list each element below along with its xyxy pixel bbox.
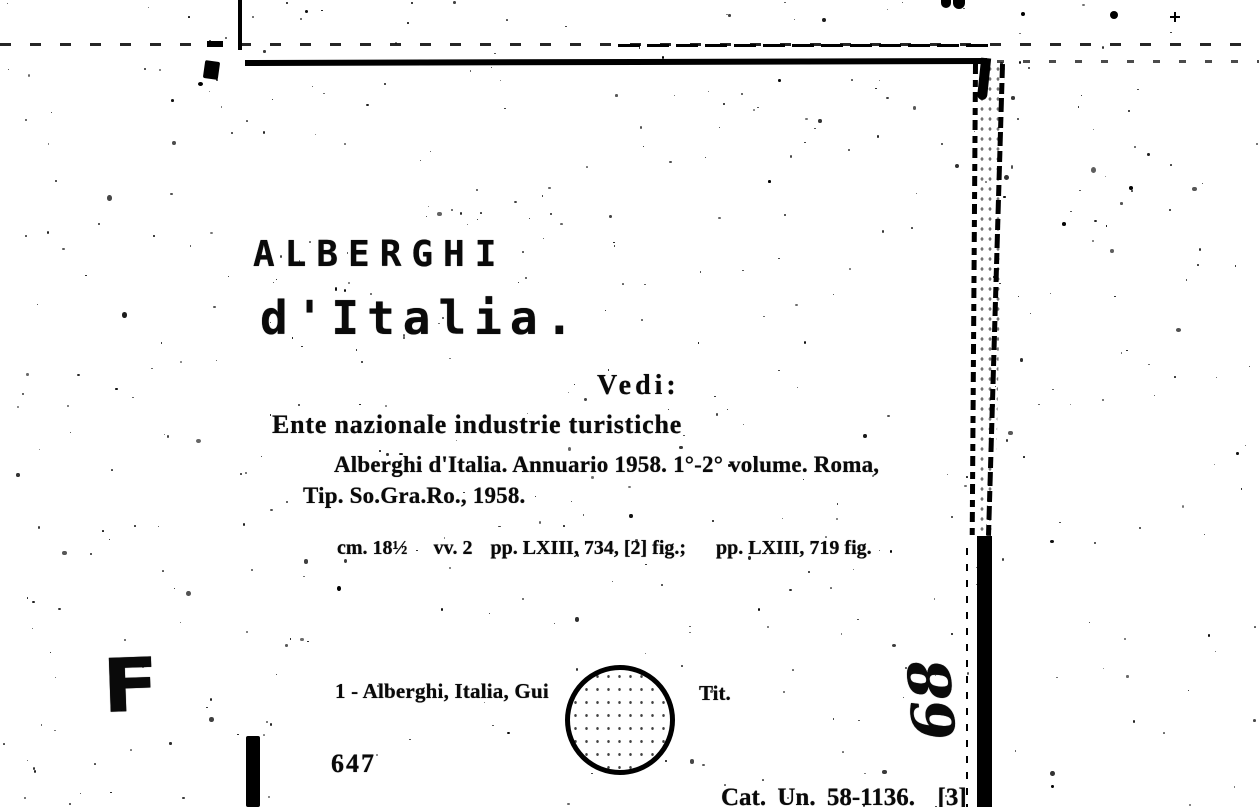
- noise-speck: [144, 68, 147, 71]
- noise-speck: [1214, 464, 1215, 465]
- noise-speck: [1050, 771, 1055, 776]
- noise-speck: [864, 773, 866, 775]
- noise-speck: [169, 742, 171, 745]
- noise-speck: [270, 509, 272, 511]
- noise-speck: [376, 754, 378, 756]
- noise-speck: [32, 628, 33, 629]
- noise-speck: [312, 86, 313, 87]
- noise-speck: [300, 18, 302, 20]
- scan-artifact-ink-dot: [1110, 11, 1118, 19]
- noise-speck: [1256, 143, 1258, 145]
- noise-speck: [963, 8, 965, 9]
- noise-speck: [303, 576, 304, 577]
- noise-speck: [543, 238, 544, 239]
- noise-speck: [514, 201, 517, 203]
- noise-speck: [728, 14, 730, 16]
- noise-speck: [80, 793, 81, 794]
- noise-speck: [848, 149, 850, 151]
- noise-speck: [741, 93, 743, 95]
- noise-speck: [384, 83, 386, 85]
- noise-speck: [767, 626, 770, 629]
- noise-speck: [1008, 431, 1012, 435]
- noise-speck: [613, 242, 615, 244]
- noise-speck: [669, 161, 672, 164]
- noise-speck: [941, 143, 943, 145]
- noise-speck: [1094, 542, 1095, 543]
- noise-speck: [758, 608, 760, 611]
- noise-speck: [719, 127, 720, 128]
- noise-speck: [1241, 488, 1242, 489]
- noise-speck: [1059, 522, 1061, 523]
- noise-speck: [1092, 240, 1094, 242]
- noise-speck: [1204, 534, 1205, 535]
- noise-speck: [851, 79, 853, 81]
- noise-speck: [276, 279, 278, 280]
- noise-speck: [252, 16, 254, 18]
- noise-speck: [270, 723, 273, 725]
- noise-speck: [1236, 452, 1239, 455]
- noise-speck: [261, 456, 263, 457]
- noise-speck: [27, 597, 28, 598]
- scan-artifact-dashed-rule-dense: [618, 44, 988, 47]
- noise-speck: [1170, 164, 1171, 166]
- noise-speck: [718, 217, 721, 219]
- noise-speck: [753, 109, 755, 111]
- noise-speck: [1192, 187, 1197, 192]
- noise-speck: [24, 797, 26, 800]
- noise-speck: [882, 230, 885, 233]
- scan-artifact-right-dotted-rule: [997, 60, 1259, 63]
- noise-speck: [231, 132, 233, 134]
- noise-speck: [1234, 786, 1236, 788]
- collation-pagination-v2: pp. LXIII, 719 fig.: [716, 537, 872, 560]
- noise-speck: [190, 245, 191, 246]
- noise-speck: [441, 608, 443, 610]
- noise-speck: [1186, 279, 1188, 281]
- noise-speck: [1070, 404, 1071, 405]
- noise-speck: [276, 674, 277, 675]
- scan-artifact-bottom-left-bar: [246, 736, 260, 807]
- noise-speck: [628, 486, 631, 488]
- noise-speck: [550, 213, 552, 215]
- noise-speck: [7, 3, 8, 4]
- noise-speck: [216, 360, 217, 362]
- noise-speck: [196, 439, 201, 443]
- noise-speck: [661, 584, 663, 586]
- noise-speck: [1102, 46, 1104, 49]
- noise-speck: [768, 180, 770, 183]
- noise-speck: [560, 223, 563, 225]
- noise-speck: [814, 128, 816, 130]
- noise-speck: [723, 103, 725, 105]
- noise-speck: [210, 232, 213, 234]
- noise-speck: [726, 14, 728, 16]
- noise-speck: [818, 119, 821, 123]
- hole-punch-circle: [565, 665, 675, 775]
- noise-speck: [853, 569, 854, 570]
- noise-speck: [955, 164, 959, 168]
- noise-speck: [892, 644, 896, 647]
- noise-speck: [887, 9, 888, 10]
- noise-speck: [803, 479, 804, 480]
- noise-speck: [679, 446, 683, 450]
- noise-speck: [554, 623, 555, 624]
- noise-speck: [1139, 527, 1141, 529]
- noise-speck: [643, 146, 644, 147]
- noise-speck: [830, 587, 833, 589]
- noise-speck: [1189, 804, 1191, 806]
- scan-artifact-ink-dot: [198, 82, 203, 86]
- noise-speck: [50, 652, 51, 653]
- noise-speck: [586, 166, 588, 168]
- noise-speck: [110, 792, 111, 793]
- noise-speck: [702, 764, 705, 766]
- noise-speck: [246, 631, 248, 634]
- noise-speck: [1050, 293, 1051, 294]
- noise-speck: [243, 523, 245, 526]
- noise-speck: [109, 539, 110, 540]
- noise-speck: [1208, 634, 1210, 636]
- noise-speck: [1174, 376, 1176, 378]
- noise-speck: [808, 571, 810, 573]
- noise-speck: [180, 361, 182, 363]
- title-line-2: Tip. So.Gra.Ro., 1958.: [303, 483, 526, 509]
- collation-pagination-v1: pp. LXIII, 734, [2] fig.;: [490, 537, 686, 560]
- noise-speck: [742, 270, 744, 272]
- noise-speck: [890, 550, 892, 552]
- noise-speck: [213, 306, 216, 309]
- noise-speck: [134, 525, 136, 527]
- noise-speck: [148, 7, 150, 8]
- noise-speck: [210, 698, 212, 701]
- noise-speck: [132, 397, 134, 398]
- noise-speck: [1215, 651, 1216, 652]
- noise-speck: [1028, 67, 1030, 70]
- noise-speck: [727, 409, 728, 410]
- noise-speck: [1003, 196, 1005, 199]
- noise-speck: [700, 271, 702, 273]
- noise-speck: [705, 157, 706, 158]
- noise-speck: [102, 530, 104, 532]
- noise-speck: [539, 521, 541, 524]
- noise-speck: [1199, 248, 1201, 251]
- noise-speck: [886, 97, 889, 99]
- noise-speck: [1094, 220, 1096, 222]
- noise-speck: [1249, 366, 1250, 367]
- noise-speck: [1245, 445, 1246, 446]
- noise-speck: [54, 730, 55, 731]
- noise-speck: [797, 387, 798, 388]
- noise-speck: [645, 653, 646, 654]
- card-number: 647: [331, 749, 376, 779]
- noise-speck: [576, 668, 578, 670]
- noise-speck: [272, 99, 273, 100]
- noise-speck: [174, 588, 175, 589]
- noise-speck: [476, 189, 478, 191]
- noise-speck: [778, 79, 780, 82]
- noise-speck: [645, 564, 647, 565]
- noise-speck: [778, 370, 780, 372]
- noise-speck: [55, 180, 57, 182]
- noise-speck: [263, 734, 265, 736]
- noise-speck: [1216, 377, 1217, 378]
- noise-speck: [33, 767, 35, 770]
- noise-speck: [85, 275, 87, 277]
- noise-speck: [507, 732, 510, 734]
- noise-speck: [763, 316, 765, 318]
- noise-speck: [1124, 638, 1126, 640]
- noise-speck: [629, 514, 633, 518]
- noise-speck: [48, 143, 49, 145]
- noise-speck: [246, 120, 248, 122]
- noise-speck: [583, 514, 585, 515]
- noise-speck: [344, 143, 346, 145]
- noise-speck: [1202, 183, 1203, 184]
- collation-volumes: vv. 2: [434, 537, 473, 560]
- noise-speck: [548, 187, 550, 190]
- noise-speck: [778, 258, 780, 260]
- noise-speck: [529, 218, 531, 219]
- noise-speck: [62, 551, 67, 556]
- noise-speck: [875, 88, 877, 90]
- noise-speck: [437, 212, 442, 217]
- noise-speck: [41, 724, 42, 726]
- noise-speck: [689, 626, 691, 628]
- noise-speck: [1134, 146, 1136, 149]
- noise-speck: [1062, 222, 1067, 226]
- scan-artifact-ink-dot: [1021, 12, 1025, 16]
- noise-speck: [323, 93, 324, 94]
- noise-speck: [689, 632, 691, 634]
- noise-speck: [644, 284, 645, 285]
- noise-speck: [180, 622, 181, 624]
- noise-speck: [1253, 719, 1256, 722]
- noise-speck: [209, 91, 210, 92]
- noise-speck: [605, 310, 606, 311]
- noise-speck: [1235, 265, 1237, 267]
- noise-speck: [1254, 626, 1256, 628]
- noise-speck: [420, 160, 421, 161]
- noise-speck: [1038, 404, 1040, 405]
- noise-speck: [305, 10, 308, 13]
- noise-speck: [337, 586, 341, 591]
- catalog-reference: Cat. Un. 58-1136. [3]: [721, 784, 967, 807]
- noise-speck: [1030, 313, 1031, 314]
- noise-speck: [158, 526, 159, 528]
- noise-speck: [708, 91, 709, 92]
- noise-speck: [171, 99, 174, 102]
- noise-speck: [1089, 622, 1090, 624]
- noise-speck: [822, 18, 826, 22]
- tracing-entry: 1 - Alberghi, Italia, Gui: [335, 679, 549, 704]
- noise-speck: [453, 1, 455, 4]
- noise-speck: [359, 404, 361, 406]
- noise-speck: [69, 803, 71, 805]
- noise-speck: [1081, 95, 1082, 96]
- noise-speck: [307, 641, 309, 642]
- noise-speck: [584, 398, 587, 401]
- penciled-number-rotated: 68: [903, 655, 987, 739]
- noise-speck: [964, 485, 966, 487]
- noise-speck: [794, 19, 795, 20]
- noise-speck: [1106, 225, 1107, 226]
- noise-speck: [1126, 350, 1127, 351]
- noise-speck: [268, 796, 270, 798]
- noise-speck: [575, 617, 579, 621]
- noise-speck: [286, 501, 288, 503]
- noise-speck: [407, 22, 409, 24]
- noise-speck: [348, 282, 350, 284]
- noise-speck: [385, 405, 387, 407]
- noise-speck: [130, 749, 132, 751]
- noise-speck: [612, 581, 613, 582]
- noise-speck: [1169, 209, 1171, 211]
- noise-speck: [1147, 153, 1150, 156]
- noise-speck: [951, 516, 953, 518]
- scan-artifact-clipped-glyph: [953, 0, 965, 9]
- noise-speck: [841, 633, 842, 634]
- noise-speck: [609, 215, 612, 218]
- noise-speck: [1017, 118, 1019, 120]
- noise-speck: [833, 294, 834, 295]
- noise-speck: [122, 312, 127, 317]
- noise-speck: [70, 432, 71, 433]
- noise-speck: [934, 598, 935, 600]
- noise-speck: [1052, 389, 1053, 390]
- noise-speck: [1051, 785, 1054, 787]
- noise-speck: [25, 235, 27, 237]
- noise-speck: [837, 503, 839, 505]
- noise-speck: [1018, 296, 1019, 298]
- noise-speck: [1105, 176, 1106, 177]
- title-line-1: Alberghi d'Italia. Annuario 1958. 1°-2° …: [334, 452, 879, 478]
- noise-speck: [1020, 358, 1023, 362]
- noise-speck: [1015, 750, 1016, 752]
- noise-speck: [836, 518, 838, 521]
- noise-speck: [1002, 558, 1004, 561]
- noise-speck: [757, 107, 758, 108]
- noise-speck: [38, 526, 40, 528]
- noise-speck: [716, 413, 718, 415]
- noise-speck: [1056, 677, 1058, 679]
- noise-speck: [111, 469, 113, 471]
- noise-speck: [39, 449, 41, 451]
- noise-speck: [491, 67, 492, 68]
- noise-speck: [263, 50, 265, 53]
- noise-speck: [470, 70, 471, 71]
- noise-speck: [913, 106, 917, 110]
- noise-speck: [1120, 202, 1124, 205]
- noise-speck: [411, 2, 413, 5]
- noise-speck: [641, 319, 643, 321]
- noise-speck: [1091, 167, 1096, 173]
- noise-speck: [27, 760, 28, 761]
- noise-speck: [1126, 675, 1128, 677]
- noise-speck: [882, 770, 886, 774]
- collation-line: cm. 18½ vv. 2 pp. LXIII, 734, [2] fig.; …: [337, 537, 872, 560]
- noise-speck: [1182, 505, 1185, 508]
- noise-speck: [159, 69, 161, 71]
- card-top-rule: [245, 58, 987, 66]
- noise-speck: [902, 2, 904, 4]
- noise-speck: [1114, 296, 1115, 298]
- noise-speck: [8, 69, 10, 70]
- noise-speck: [300, 638, 304, 641]
- noise-speck: [877, 135, 879, 137]
- noise-speck: [58, 608, 61, 611]
- noise-speck: [167, 435, 169, 438]
- noise-speck: [98, 223, 100, 225]
- noise-speck: [743, 424, 744, 425]
- noise-speck: [1121, 352, 1123, 353]
- noise-speck: [681, 665, 683, 667]
- noise-speck: [518, 282, 519, 283]
- noise-speck: [615, 94, 617, 97]
- noise-speck: [506, 19, 508, 21]
- noise-speck: [25, 119, 27, 122]
- noise-speck: [366, 104, 368, 106]
- noise-speck: [1103, 668, 1104, 669]
- noise-speck: [55, 677, 57, 679]
- noise-speck: [251, 569, 253, 571]
- noise-speck: [887, 415, 890, 417]
- noise-speck: [1082, 4, 1084, 6]
- noise-speck: [1129, 186, 1133, 190]
- noise-speck: [804, 142, 806, 144]
- noise-speck: [712, 520, 714, 522]
- noise-speck: [1011, 96, 1015, 99]
- noise-speck: [162, 570, 164, 572]
- noise-speck: [298, 404, 300, 406]
- noise-speck: [480, 212, 482, 214]
- noise-speck: [683, 435, 685, 437]
- noise-speck: [90, 553, 92, 555]
- noise-speck: [124, 639, 126, 641]
- noise-speck: [947, 474, 948, 475]
- noise-speck: [792, 669, 794, 671]
- noise-speck: [1148, 364, 1150, 366]
- noise-speck: [285, 644, 288, 647]
- noise-speck: [640, 126, 643, 129]
- noise-speck: [622, 283, 624, 285]
- noise-speck: [315, 134, 316, 135]
- noise-speck: [153, 235, 155, 237]
- noise-speck: [916, 193, 917, 194]
- noise-speck: [221, 106, 223, 107]
- noise-speck: [674, 95, 675, 96]
- noise-speck: [206, 707, 207, 708]
- noise-speck: [911, 227, 913, 229]
- scan-artifact-ink-blob: [203, 60, 220, 80]
- noise-speck: [240, 473, 242, 475]
- noise-speck: [16, 473, 19, 477]
- noise-speck: [161, 342, 163, 344]
- noise-speck: [567, 803, 570, 806]
- noise-speck: [784, 2, 786, 3]
- noise-speck: [17, 406, 19, 408]
- noise-speck: [449, 567, 452, 570]
- noise-speck: [1137, 89, 1139, 91]
- noise-speck: [966, 476, 968, 478]
- noise-speck: [879, 80, 880, 81]
- stamp-letter-f: F: [101, 648, 160, 724]
- noise-speck: [409, 739, 410, 740]
- noise-speck: [430, 151, 432, 152]
- collation-size: cm. 18½: [337, 537, 408, 560]
- noise-speck: [1131, 190, 1133, 192]
- noise-speck: [361, 361, 363, 364]
- noise-speck: [614, 245, 615, 247]
